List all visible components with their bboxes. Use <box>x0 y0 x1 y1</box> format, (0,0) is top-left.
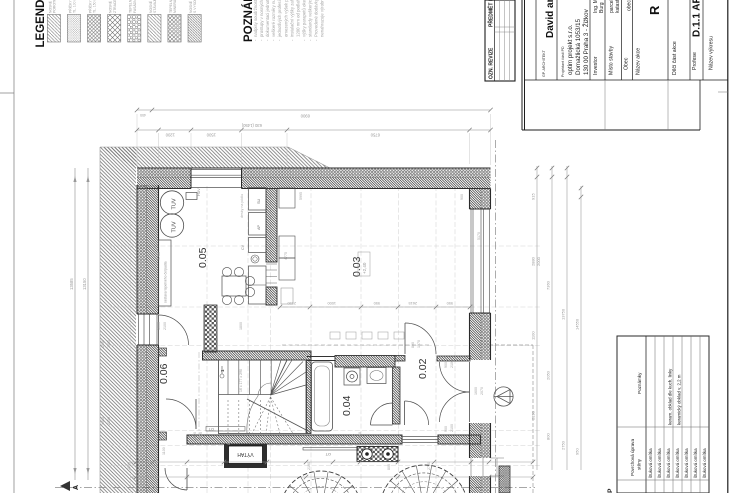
svg-text:David architekt: David architekt <box>545 0 556 38</box>
svg-text:nenahrazuje výrobní dokumentac: nenahrazuje výrobní dokumentaci dodavate… <box>320 0 325 37</box>
svg-text:výšky parapetů oken dle výpisu: výšky parapetů oken dle výpisu oken a ta… <box>301 0 306 37</box>
svg-text:5995: 5995 <box>299 192 303 200</box>
svg-text:5170: 5170 <box>477 232 481 240</box>
svg-text:1970: 1970 <box>358 432 362 440</box>
svg-text:dokumentaci jednotlivých profe: dokumentaci jednotlivých profesí, bude u… <box>265 0 270 37</box>
svg-text:TUV: TUV <box>172 198 178 209</box>
svg-text:2100: 2100 <box>199 432 203 440</box>
svg-text:instalační výšky zařizovacích: instalační výšky zařizovacích předmětů b… <box>289 0 294 37</box>
svg-text:6900: 6900 <box>300 114 310 119</box>
svg-text:štuková omítka: štuková omítka <box>684 448 689 478</box>
svg-text:optim projekt s.r.o.: optim projekt s.r.o. <box>567 24 574 75</box>
svg-text:4775: 4775 <box>284 252 288 260</box>
svg-text:1000: 1000 <box>328 301 336 305</box>
svg-text:7360: 7360 <box>546 280 551 290</box>
svg-text:GP. ARCHITEKT: GP. ARCHITEKT <box>542 49 546 77</box>
svg-text:2750: 2750 <box>561 440 566 450</box>
svg-text:0.06: 0.06 <box>158 363 170 384</box>
svg-text:SU: SU <box>257 198 261 204</box>
svg-text:D.1.1 ARCH: D.1.1 ARCH <box>692 0 703 37</box>
svg-text:TL. 100 mm: TL. 100 mm <box>73 0 77 13</box>
svg-text:130 00 Praha 3 - Žižkov: 130 00 Praha 3 - Žižkov <box>582 8 590 75</box>
svg-text:omezených výšek podchodných v: omezených výšek podchodných v místech in… <box>283 0 288 37</box>
svg-text:nadpisy soudržnosti podkladníc: nadpisy soudržnosti podkladních vrstev a… <box>253 0 258 37</box>
svg-text:FASÁDNÍ EPS: FASÁDNÍ EPS <box>133 0 137 13</box>
svg-text:standardy veškerých výrobků a: standardy veškerých výrobků a materiálů … <box>307 0 312 37</box>
svg-text:TUV: TUV <box>172 221 178 232</box>
svg-text:800: 800 <box>411 342 415 348</box>
svg-text:1500: 1500 <box>206 133 216 138</box>
svg-text:Název akce: Název akce <box>636 48 642 75</box>
svg-text:+2,40: +2,40 <box>362 262 367 274</box>
svg-text:HUV: HUV <box>197 188 201 196</box>
svg-text:jednotlivých profesí na stavbě: jednotlivých profesí na stavbě koordinov… <box>277 0 282 38</box>
svg-text:Investor: Investor <box>593 56 599 75</box>
svg-text:1200: 1200 <box>165 133 175 138</box>
svg-text:Provedené dodávky budou odpoví: Provedené dodávky budou odpovídat projek… <box>314 0 319 37</box>
svg-text:Povrchová úprava: Povrchová úprava <box>630 439 635 476</box>
svg-text:1.NP: 1.NP <box>607 488 614 493</box>
svg-text:desky na pódiu: desky na pódiu <box>240 194 244 218</box>
svg-text:700: 700 <box>352 434 356 440</box>
svg-text:2100: 2100 <box>163 322 167 330</box>
svg-text:900: 900 <box>460 194 464 200</box>
svg-text:13150: 13150 <box>82 278 87 290</box>
svg-text:2100: 2100 <box>450 360 454 368</box>
svg-text:800: 800 <box>546 433 551 440</box>
svg-text:prostupy v nosných konstrukcíc: prostupy v nosných konstrukcích nutno ko… <box>259 0 264 37</box>
svg-text:2615: 2615 <box>409 301 417 305</box>
svg-text:0.04: 0.04 <box>341 395 353 416</box>
svg-text:stěny: stěny <box>637 458 642 470</box>
svg-text:štuková omítka: štuková omítka <box>666 448 671 478</box>
svg-text:Obec: Obec <box>624 57 630 70</box>
svg-text:1100: 1100 <box>162 447 166 455</box>
svg-text:štuková omítka: štuková omítka <box>657 448 662 478</box>
svg-text:keramický obklad v. 2,2 m: keramický obklad v. 2,2 m <box>677 374 682 425</box>
svg-text:Poznámky: Poznámky <box>637 372 642 394</box>
svg-text:2880: 2880 <box>531 256 536 266</box>
svg-text:štuková omítka: štuková omítka <box>693 448 698 478</box>
svg-text:MINERÁLNÍ: MINERÁLNÍ <box>173 0 177 13</box>
svg-text:2150: 2150 <box>288 301 296 305</box>
svg-text:2070: 2070 <box>480 387 484 395</box>
svg-text:14550: 14550 <box>575 318 580 330</box>
svg-text:obec: obec <box>627 0 633 11</box>
svg-text:štuková omítka: štuková omítka <box>648 448 653 478</box>
svg-text:štuková omítka: štuková omítka <box>675 448 680 478</box>
svg-text:OZN. REVIZE: OZN. REVIZE <box>489 47 495 79</box>
svg-text:S VYSOKOU: S VYSOKOU <box>193 0 197 13</box>
svg-text:2750: 2750 <box>427 462 431 470</box>
svg-text:katast: katast <box>615 0 621 13</box>
svg-text:13585: 13585 <box>69 278 74 290</box>
svg-text:ZTRACENÉ BED: ZTRACENÉ BED <box>112 0 117 13</box>
svg-text:915: 915 <box>531 193 536 200</box>
svg-text:630 (1450): 630 (1450) <box>241 123 262 128</box>
svg-text:Domažlická 1053/15: Domažlická 1053/15 <box>575 18 582 75</box>
svg-text:2190: 2190 <box>127 462 131 470</box>
svg-text:2050: 2050 <box>546 370 551 380</box>
svg-text:VÝTAH: VÝTAH <box>237 451 254 458</box>
svg-text:1000: 1000 <box>101 417 105 425</box>
svg-text:2100: 2100 <box>450 424 454 432</box>
svg-text:TL. 150 mm: TL. 150 mm <box>93 0 97 13</box>
svg-text:CV: CV <box>241 244 245 250</box>
svg-text:1100: 1100 <box>531 331 536 340</box>
svg-text:1800: 1800 <box>239 322 243 330</box>
svg-text:4705: 4705 <box>157 252 161 260</box>
svg-text:900: 900 <box>444 362 448 368</box>
svg-text:2190: 2190 <box>531 410 536 420</box>
svg-text:2190: 2190 <box>307 462 311 470</box>
svg-text:6750: 6750 <box>370 133 380 138</box>
svg-text:950: 950 <box>447 301 453 305</box>
svg-text:Místo stavby: Místo stavby <box>609 45 615 75</box>
svg-text:STÁVAJÍCÍ: STÁVAJÍCÍ <box>153 0 157 13</box>
svg-text:AP: AP <box>257 224 261 230</box>
svg-text:800: 800 <box>227 439 231 445</box>
svg-text:13750: 13750 <box>561 308 566 320</box>
svg-text:štuková omítka: štuková omítka <box>702 448 707 478</box>
svg-text:2400: 2400 <box>107 340 111 348</box>
svg-text:1500: 1500 <box>101 340 105 348</box>
svg-text:800: 800 <box>387 464 391 470</box>
svg-text:POROTHERM 30: POROTHERM 30 <box>53 0 57 13</box>
svg-text:1200 mm od podlahy, pokud není: 1200 mm od podlahy, pokud není uvedeno j… <box>295 0 300 37</box>
svg-text:0.02: 0.02 <box>417 358 429 379</box>
svg-text:900: 900 <box>444 426 448 432</box>
svg-text:400: 400 <box>140 113 146 117</box>
svg-text:1000: 1000 <box>157 322 161 330</box>
svg-text:R: R <box>647 5 662 15</box>
svg-text:PŘEDMĚT R: PŘEDMĚT R <box>487 0 495 27</box>
svg-text:LEGENDA MATER: LEGENDA MATER <box>35 0 47 48</box>
svg-text:1970: 1970 <box>417 340 421 348</box>
svg-text:1000: 1000 <box>193 432 197 440</box>
svg-text:keram. obklad dle kuch. linky: keram. obklad dle kuch. linky <box>668 368 673 425</box>
svg-text:2100: 2100 <box>107 417 111 425</box>
svg-text:Burg: Burg <box>599 2 605 13</box>
svg-text:950: 950 <box>374 301 380 305</box>
svg-text:OT: OT <box>325 452 331 456</box>
svg-text:Profese: Profese <box>692 52 698 70</box>
svg-text:OT: OT <box>208 427 214 431</box>
svg-text:16 x 177 x 290: 16 x 177 x 290 <box>239 369 243 392</box>
svg-text:A: A <box>73 485 80 490</box>
svg-text:1600: 1600 <box>474 387 478 395</box>
svg-text:2000: 2000 <box>536 256 541 266</box>
svg-text:Název výkresu: Název výkresu <box>709 36 715 70</box>
svg-text:sestava tepelného čerpadla: sestava tepelného čerpadla <box>164 261 168 303</box>
svg-text:950: 950 <box>575 448 580 455</box>
svg-text:Projektant části PD: Projektant části PD <box>561 46 565 77</box>
svg-text:0.05: 0.05 <box>197 247 209 268</box>
svg-text:Dílčí část akce: Dílčí část akce <box>672 41 678 75</box>
svg-text:veškeré rozměry nutno ověřit p: veškeré rozměry nutno ověřit přímo na st… <box>271 0 276 37</box>
